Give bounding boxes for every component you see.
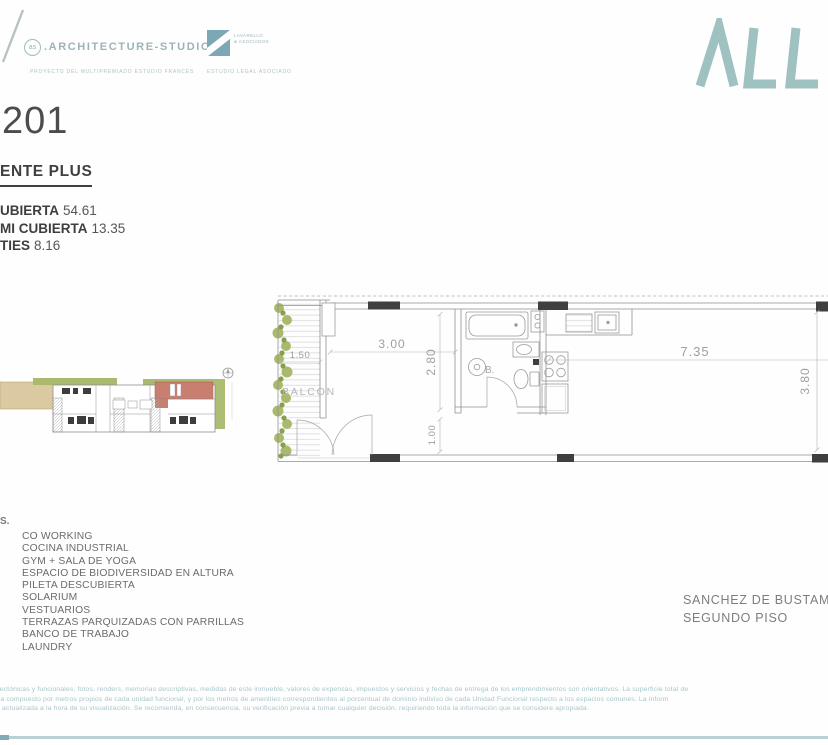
- drainboard: [566, 314, 592, 332]
- bathroom-door: [487, 377, 517, 407]
- footer-rule: [0, 736, 828, 739]
- kitchen-fixtures: [542, 312, 619, 413]
- area-label: TIES: [0, 238, 30, 253]
- bathtub: [466, 312, 528, 339]
- amenities-heading-fragment: S.: [0, 516, 9, 527]
- logo-slash-shape: [207, 30, 230, 56]
- compass-icon: [223, 368, 233, 378]
- area-value: 54.61: [63, 203, 97, 218]
- dim-room-depth: 2.80: [424, 348, 438, 375]
- architecture-studio-logo: as .ARCHITECTURE-STUDIO: [24, 30, 211, 64]
- dim-room-width: 3.00: [378, 337, 405, 351]
- amenity-item: COCINA INDUSTRIAL: [22, 543, 244, 555]
- legal-studio-name-line2: & ASOCIADOS: [234, 39, 269, 45]
- cropped-slash-mark: [0, 8, 26, 66]
- area-row-amenities: TIES8.16: [0, 237, 125, 255]
- architecture-studio-tagline: PROYECTO DEL MULTIPREMIADO ESTUDIO FRANC…: [30, 69, 194, 75]
- amenity-item: BANCO DE TRABAJO: [22, 629, 244, 641]
- amenity-item: SOLARIUM: [22, 592, 244, 604]
- brand-logo-all: [692, 18, 828, 92]
- amenity-item: VESTUARIOS: [22, 605, 244, 617]
- disclaimer-line: itectónicas y funcionales, fotos, render…: [0, 685, 828, 695]
- legal-studio-name: LAVARELLO & ASOCIADOS: [234, 33, 269, 45]
- brand-letter-l2: [790, 28, 818, 84]
- amenity-item: LAUNDRY: [22, 642, 244, 654]
- area-table: UBIERTA54.61 MI CUBIERTA13.35 TIES8.16: [0, 202, 125, 255]
- area-value: 8.16: [34, 238, 60, 253]
- disclaimer-line: tra compuesto por metros propios de cada…: [0, 695, 828, 705]
- bathroom-fixtures: [466, 311, 544, 389]
- area-row-cubierta: UBIERTA54.61: [0, 202, 125, 220]
- dim-balcony-width: 1.50: [290, 350, 311, 361]
- legal-studio-tagline: ESTUDIO LEGAL ASOCIADO: [207, 69, 292, 75]
- plan-labels: 1.50 3.00 2.80 1.00 7.35 3.80 BALCON B.: [282, 337, 812, 445]
- disclaimer-line: e actualizada a la hora de su visualizac…: [0, 704, 828, 714]
- balcony-label: BALCON: [282, 386, 336, 398]
- area-label: UBIERTA: [0, 203, 59, 218]
- amenity-item: CO WORKING: [22, 531, 244, 543]
- dimension-lines: [279, 310, 828, 454]
- footer-rule-tip: [0, 735, 9, 740]
- key-plan: [0, 362, 240, 444]
- unit-type-label: ENTE PLUS: [0, 163, 92, 187]
- unit-number: 201: [2, 100, 68, 143]
- bath-label: B.: [485, 365, 494, 376]
- brand-letter-lambda: [700, 26, 734, 86]
- amenity-item: ESPACIO DE BIODIVERSIDAD EN ALTURA: [22, 568, 244, 580]
- area-label: MI CUBIERTA: [0, 221, 88, 236]
- architecture-studio-name: .ARCHITECTURE-STUDIO: [44, 41, 211, 53]
- amenities-list: CO WORKING COCINA INDUSTRIAL GYM + SALA …: [22, 531, 244, 654]
- washer: [469, 359, 486, 376]
- amenity-item: TERRAZAS PARQUIZADAS CON PARRILLAS: [22, 617, 244, 629]
- walls: [278, 296, 828, 462]
- area-row-semicubierta: MI CUBIERTA13.35: [0, 220, 125, 238]
- balcony-floor-hatch: [279, 301, 320, 460]
- legal-disclaimer: itectónicas y funcionales, fotos, render…: [0, 685, 828, 714]
- dim-living-width: 7.35: [680, 344, 709, 359]
- legal-studio-logo-icon: [207, 30, 230, 56]
- amenity-item: PILETA DESCUBIERTA: [22, 580, 244, 592]
- balcony-door-right: [332, 415, 372, 455]
- brand-letter-l1: [748, 28, 776, 84]
- floor-plan: 1.50 3.00 2.80 1.00 7.35 3.80 BALCON B.: [270, 280, 828, 476]
- location-floor: SEGUNDO PISO: [683, 610, 828, 628]
- location-block: SANCHEZ DE BUSTAMANTE SEGUNDO PISO: [683, 592, 828, 627]
- dim-passage: 1.00: [427, 425, 438, 446]
- area-value: 13.35: [92, 221, 126, 236]
- toilet: [514, 370, 528, 389]
- brochure-page: as .ARCHITECTURE-STUDIO PROYECTO DEL MUL…: [0, 0, 828, 745]
- dim-living-depth: 3.80: [798, 367, 812, 394]
- amenity-item: GYM + SALA DE YOGA: [22, 556, 244, 568]
- as-badge-icon: as: [24, 39, 41, 56]
- location-street: SANCHEZ DE BUSTAMANTE: [683, 592, 828, 610]
